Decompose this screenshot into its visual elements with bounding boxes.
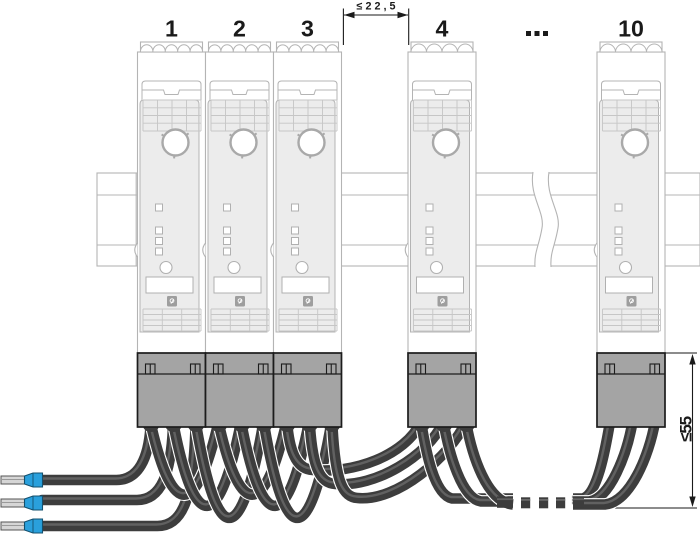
svg-text:4: 4: [436, 16, 449, 42]
svg-text:10: 10: [618, 16, 644, 42]
svg-text:≤55: ≤55: [677, 416, 696, 441]
svg-text:2: 2: [233, 16, 246, 42]
svg-text:1: 1: [165, 16, 178, 42]
svg-text:≤22,5: ≤22,5: [357, 1, 399, 13]
svg-text:3: 3: [301, 16, 314, 42]
